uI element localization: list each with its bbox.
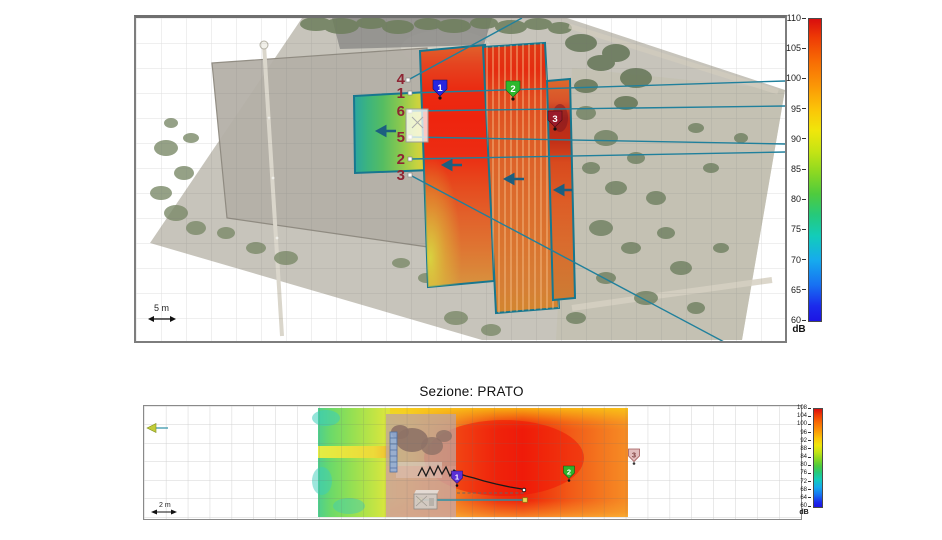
- colorbar-tick-75: 75: [791, 224, 806, 234]
- section-label: 2: [397, 151, 405, 168]
- plan-colorbar-ticks: 1101051009590858075706560: [778, 18, 806, 320]
- colorbar-tick-80: 80: [791, 194, 806, 204]
- colorbar-tick-100: 100: [786, 73, 806, 83]
- colorbar-tick-90: 90: [791, 134, 806, 144]
- colorbar-tick-100: 100: [797, 421, 811, 427]
- colorbar-tick-110: 110: [787, 13, 806, 23]
- colorbar-tick-84: 84: [800, 454, 811, 460]
- colorbar-tick-80: 80: [800, 462, 811, 468]
- colorbar-tick-72: 72: [800, 479, 811, 485]
- colorbar-tick-108: 108: [797, 405, 811, 411]
- section-colorbar-ticks: 10810410096928884807672686460: [787, 408, 811, 506]
- colorbar-tick-68: 68: [800, 487, 811, 493]
- section-view-panel: 1 2 3 2 m: [143, 405, 802, 520]
- receiver-label: 2: [510, 84, 515, 95]
- scale-label: 5 m: [154, 303, 169, 313]
- section-label: 3: [397, 167, 405, 184]
- colorbar-tick-88: 88: [800, 446, 811, 452]
- colorbar-tick-85: 85: [791, 164, 806, 174]
- scale-label: 2 m: [159, 502, 171, 509]
- colorbar-tick-105: 105: [786, 43, 806, 53]
- colorbar-tick-65: 65: [791, 285, 806, 295]
- baseline-handle[interactable]: [523, 498, 528, 503]
- receiver-label: 3: [552, 114, 557, 125]
- section-building-symbol[interactable]: [414, 490, 439, 509]
- plan-colorbar: 1101051009590858075706560 dB: [778, 12, 824, 334]
- colorbar-tick-96: 96: [800, 430, 811, 436]
- noise-mapping-canvas: 4 1 6 5 2 3 1 2 3: [0, 0, 942, 540]
- plan-colorbar-unit: dB: [778, 324, 820, 335]
- plan-colorbar-gradient: [808, 18, 822, 322]
- receiver-label: 1: [455, 473, 459, 482]
- section-label: 5: [397, 129, 405, 146]
- section-grid: [144, 406, 801, 519]
- colorbar-tick-92: 92: [800, 438, 811, 444]
- section-drawing: 1 2 3 2 m: [144, 406, 801, 519]
- receiver-label: 2: [567, 468, 571, 477]
- receiver-label: 3: [632, 451, 636, 460]
- section-label: 1: [397, 85, 405, 102]
- colorbar-tick-95: 95: [791, 104, 806, 114]
- section-colorbar: 10810410096928884807672686460 dB: [787, 404, 825, 520]
- colorbar-tick-104: 104: [797, 413, 811, 419]
- building-symbol[interactable]: [406, 109, 428, 142]
- colorbar-tick-76: 76: [800, 470, 811, 476]
- colorbar-tick-70: 70: [791, 255, 806, 265]
- colorbar-tick-64: 64: [800, 495, 811, 501]
- plan-view-drawing: 4 1 6 5 2 3 1 2 3: [136, 18, 785, 341]
- plan-view-panel: 4 1 6 5 2 3 1 2 3: [134, 15, 787, 343]
- receiver-label: 1: [437, 83, 443, 94]
- section-label: 6: [397, 103, 405, 120]
- section-colorbar-gradient: [813, 408, 823, 508]
- section-colorbar-unit: dB: [787, 509, 821, 516]
- section-title: Sezione: PRATO: [143, 384, 800, 399]
